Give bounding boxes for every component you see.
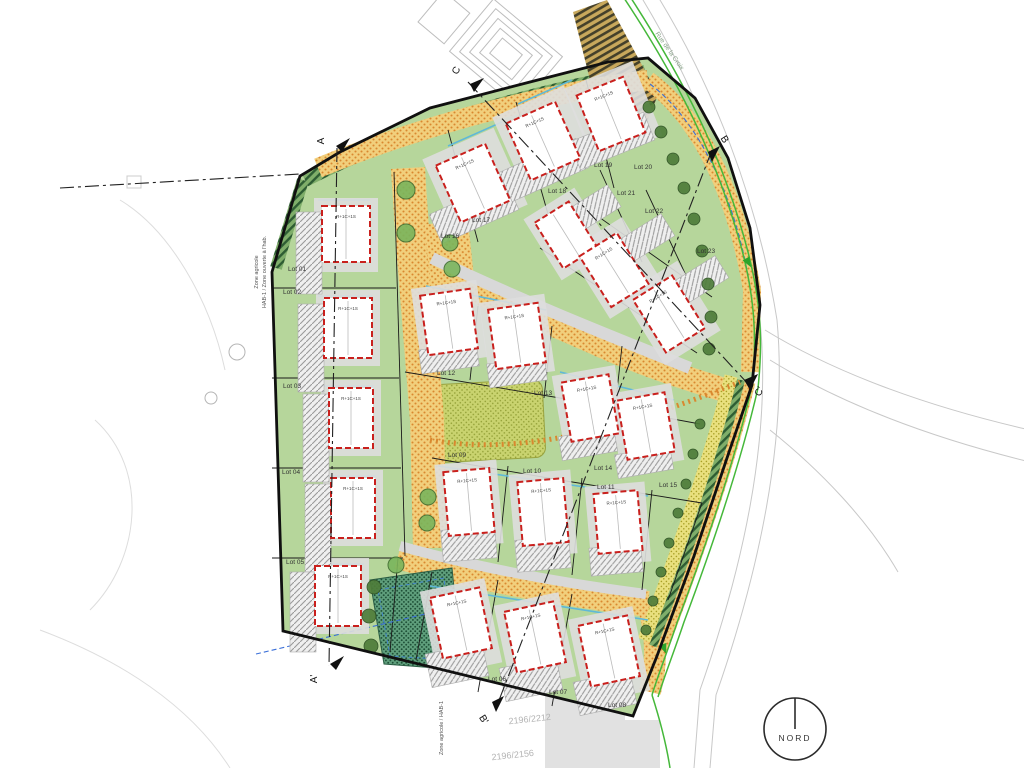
- tree-icon: [397, 224, 415, 242]
- site-plan-drawing: R+1C+1SR+1C+1SR+1C+1SR+1C+1SR+1C+1SR+1C+…: [0, 0, 1024, 768]
- building: R+1C+1S: [617, 392, 675, 459]
- driveway-hatch: [290, 572, 316, 652]
- shrub-icon: [681, 479, 691, 489]
- building-type-label: R+1C+1S: [336, 214, 356, 219]
- shrub-icon: [643, 101, 655, 113]
- section-flag-icon: [492, 696, 504, 712]
- tree-icon: [397, 181, 415, 199]
- lot-label: Lot 04: [282, 469, 300, 476]
- section-line: [60, 174, 300, 188]
- driveway-hatch: [305, 484, 331, 572]
- section-marker-c-top: C: [450, 65, 463, 77]
- context-contour-line: [40, 630, 230, 768]
- north-compass: NORD: [764, 698, 826, 760]
- lot-label: Lot 13: [534, 390, 552, 397]
- building: R+1C+1S: [517, 478, 568, 546]
- building: R+1C+1S: [443, 468, 494, 536]
- lot-label: Lot 20: [634, 164, 652, 171]
- building: R+1C+1S: [322, 206, 370, 262]
- lot-label: Lot 05: [286, 559, 304, 566]
- zone-label-bottom: Zone agricole / HAB-1: [439, 701, 445, 755]
- building: R+1C+1S: [315, 566, 361, 626]
- lot-label: Lot 19: [594, 162, 612, 169]
- lot-label: Lot 03: [283, 383, 301, 390]
- tree-icon: [419, 515, 435, 531]
- north-label: NORD: [778, 733, 811, 743]
- lot-label: Lot 16: [441, 233, 459, 240]
- context-parcel: [625, 720, 660, 768]
- building: R+1C+1S: [561, 374, 619, 441]
- lot-label: Lot 17: [472, 217, 490, 224]
- shrub-icon: [705, 311, 717, 323]
- context-road-line: [770, 430, 898, 572]
- building-type-label: R+1C+1S: [343, 486, 363, 491]
- lot-label: Lot 18: [548, 188, 566, 195]
- section-flag-icon: [470, 78, 484, 92]
- building: R+1C+1S: [324, 298, 372, 358]
- driveway-hatch: [296, 212, 322, 294]
- shrub-icon: [695, 419, 705, 429]
- lot-label: Lot 11: [597, 484, 615, 491]
- lot-label: Lot 08: [608, 702, 626, 709]
- zone-label-left-2: HAB-1 / Zone ouverte à l'hab.: [262, 235, 268, 308]
- shrub-icon: [656, 567, 666, 577]
- parcel-number-lower: 2196/2156: [491, 748, 534, 762]
- lot-label: Lot 09: [448, 452, 466, 459]
- building: R+1C+1S: [420, 289, 478, 355]
- shrub-icon: [702, 278, 714, 290]
- building-type-label: R+1C+1S: [341, 396, 361, 401]
- shrub-icon: [688, 449, 698, 459]
- site-plan-canvas: R+1C+1SR+1C+1SR+1C+1SR+1C+1SR+1C+1SR+1C+…: [0, 0, 1024, 768]
- shrub-icon: [688, 213, 700, 225]
- context-contour-line: [90, 420, 132, 610]
- lot-label: Lot 12: [437, 370, 455, 377]
- context-tree-icon: [205, 392, 217, 404]
- building-type-label: R+1C+1S: [338, 306, 358, 311]
- building-type-label: R+1C+1S: [328, 574, 348, 579]
- driveway-hatch: [298, 304, 324, 392]
- section-marker-c-right: C': [753, 385, 767, 398]
- driveway-hatch: [303, 394, 329, 482]
- shrub-icon: [678, 182, 690, 194]
- shrub-icon: [703, 343, 715, 355]
- section-marker-a-top: A: [316, 137, 327, 144]
- lot-label: Lot 01: [288, 266, 306, 273]
- lot-label: Lot 15: [659, 482, 677, 489]
- shrub-icon: [667, 153, 679, 165]
- section-marker-b-bottom: B': [476, 713, 490, 726]
- lot-label: Lot 02: [283, 289, 301, 296]
- shrub-icon: [367, 580, 381, 594]
- context-road-line: [765, 330, 1024, 430]
- lot-label: Lot 21: [617, 190, 635, 197]
- lot-label: Lot 06: [488, 676, 506, 683]
- zone-label-left-1: Zone agricole: [254, 255, 260, 288]
- lot-label: Lot 23: [697, 248, 715, 255]
- tree-icon: [444, 261, 460, 277]
- shrub-icon: [664, 538, 674, 548]
- tree-icon: [420, 489, 436, 505]
- section-marker-a-bottom: A': [309, 675, 320, 684]
- context-road-line: [770, 360, 1024, 462]
- context-marker: [127, 176, 141, 188]
- lot-label: Lot 22: [645, 208, 663, 215]
- context-contour-line: [120, 200, 225, 370]
- section-flag-icon: [330, 656, 344, 670]
- parcel-number-upper: 2196/2212: [508, 712, 551, 726]
- shrub-icon: [362, 609, 376, 623]
- building: R+1C+1S: [488, 303, 546, 369]
- building: R+1C+1S: [593, 490, 642, 554]
- building: R+1C+1S: [331, 478, 375, 538]
- lot-label: Lot 07: [549, 689, 567, 696]
- lot-label: Lot 14: [594, 465, 612, 472]
- building: R+1C+1S: [329, 388, 373, 448]
- shrub-icon: [655, 126, 667, 138]
- context-tree-icon: [229, 344, 245, 360]
- lot-label: Lot 10: [523, 468, 541, 475]
- shrub-icon: [673, 508, 683, 518]
- tree-icon: [388, 557, 404, 573]
- shrub-icon: [641, 625, 651, 635]
- shrub-icon: [648, 596, 658, 606]
- green-space: [430, 379, 546, 463]
